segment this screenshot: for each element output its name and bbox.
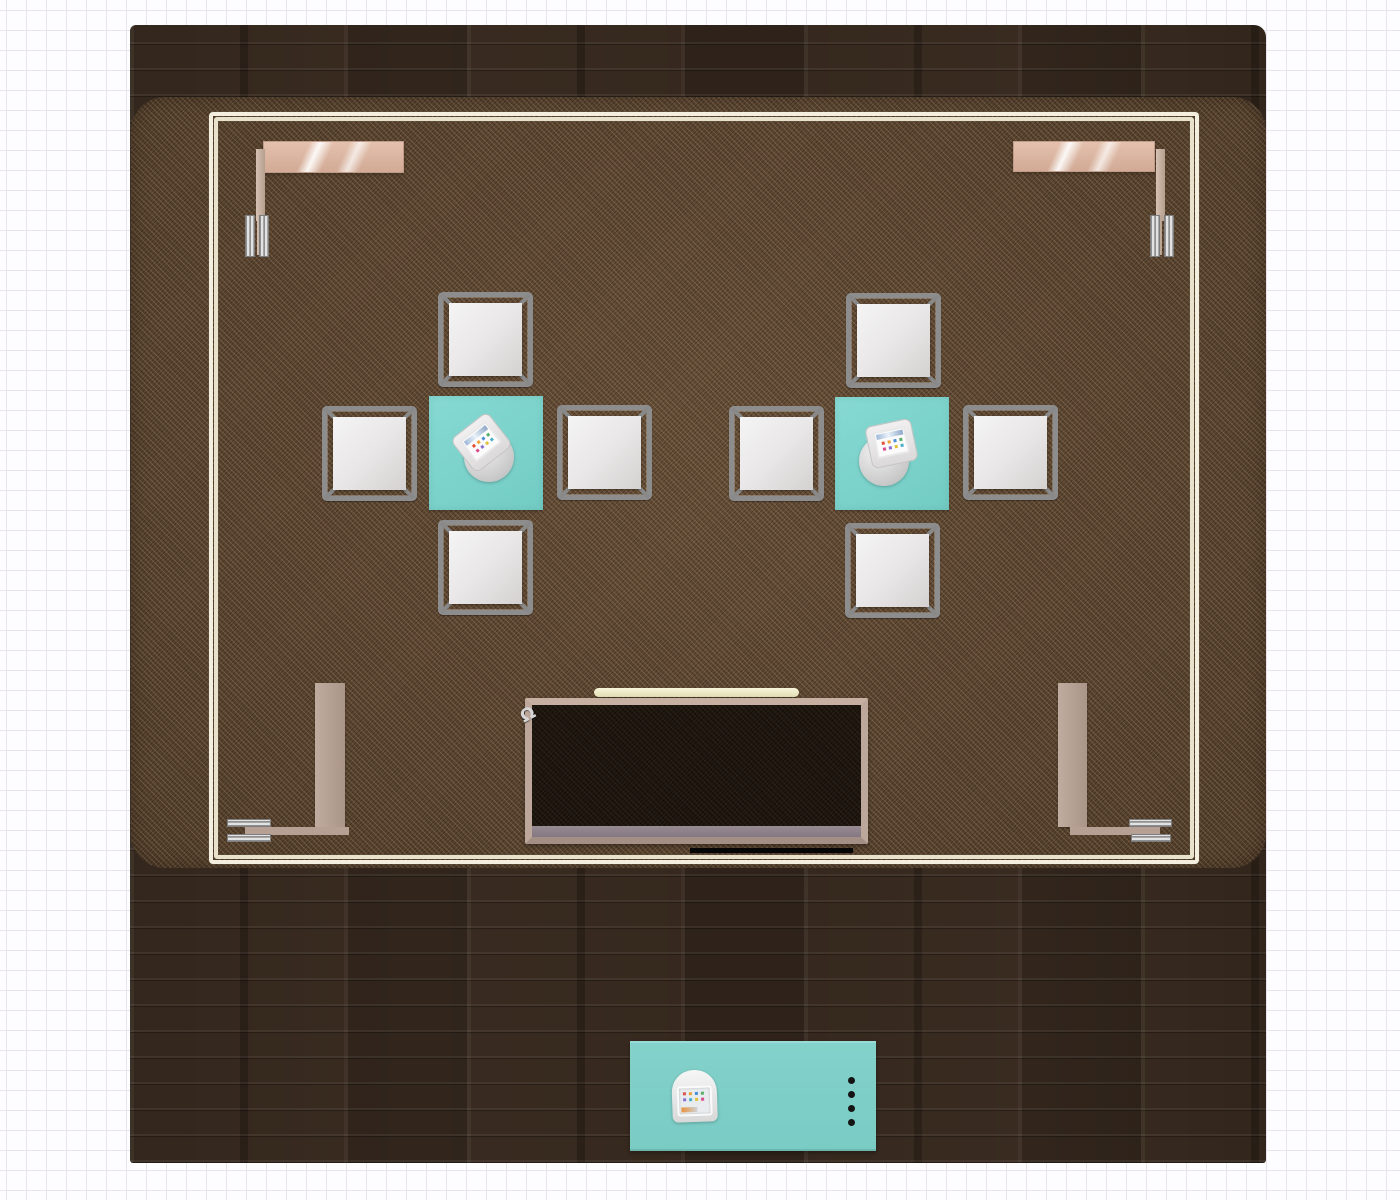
kiosk-body (864, 418, 919, 470)
chair-top[interactable] (846, 293, 941, 388)
light-base (259, 215, 269, 257)
media-desk-group: Ω (518, 688, 870, 858)
design-canvas[interactable]: Ω (0, 0, 1400, 1200)
media-desk[interactable] (525, 698, 868, 844)
light-base (245, 215, 255, 257)
lamp-base (1129, 819, 1172, 827)
app-icons (683, 1092, 686, 1095)
tablet-kiosk[interactable] (455, 420, 519, 484)
console-table-bottom[interactable] (630, 1041, 876, 1151)
light-panel (1013, 141, 1155, 172)
desk-light-bar[interactable] (594, 688, 799, 697)
light-arm (256, 149, 265, 221)
light-arm (1156, 149, 1165, 221)
floor-lamp-bottom-left[interactable] (227, 683, 352, 843)
desk-shadow-strip (690, 848, 853, 853)
chair-top[interactable] (438, 292, 533, 387)
chair-right[interactable] (557, 405, 652, 500)
light-panel (263, 141, 404, 173)
dining-set-right (729, 293, 1059, 617)
desk-front-band (532, 826, 861, 837)
chair-bottom[interactable] (845, 523, 940, 618)
chair-right[interactable] (963, 405, 1058, 500)
screen-banner (876, 429, 903, 440)
lamp-base (227, 834, 271, 842)
chair-seat (449, 303, 522, 376)
app-icons (472, 444, 476, 448)
tablet-kiosk[interactable] (859, 420, 923, 484)
tablet-kiosk[interactable] (671, 1069, 718, 1123)
screen-banner (464, 425, 488, 446)
kiosk-screen (460, 421, 503, 463)
light-base (1164, 215, 1174, 257)
app-icons (881, 441, 885, 445)
chair-left[interactable] (729, 406, 824, 501)
wall-light-top-left[interactable] (245, 141, 405, 259)
wall-light-top-right[interactable] (1013, 141, 1173, 259)
chair-left[interactable] (322, 406, 417, 501)
lamp-base (1131, 834, 1171, 842)
dining-set-left (322, 292, 653, 616)
dock-bar (681, 1107, 697, 1113)
kiosk-screen (872, 426, 910, 459)
upright-panel (315, 683, 345, 827)
upright-panel (1058, 683, 1087, 827)
light-base (1150, 215, 1160, 257)
floor-lamp-bottom-right[interactable] (1048, 683, 1173, 843)
console-knobs (848, 1077, 855, 1084)
kiosk-screen (677, 1085, 713, 1116)
lamp-base (227, 819, 271, 827)
chair-bottom[interactable] (438, 520, 533, 615)
